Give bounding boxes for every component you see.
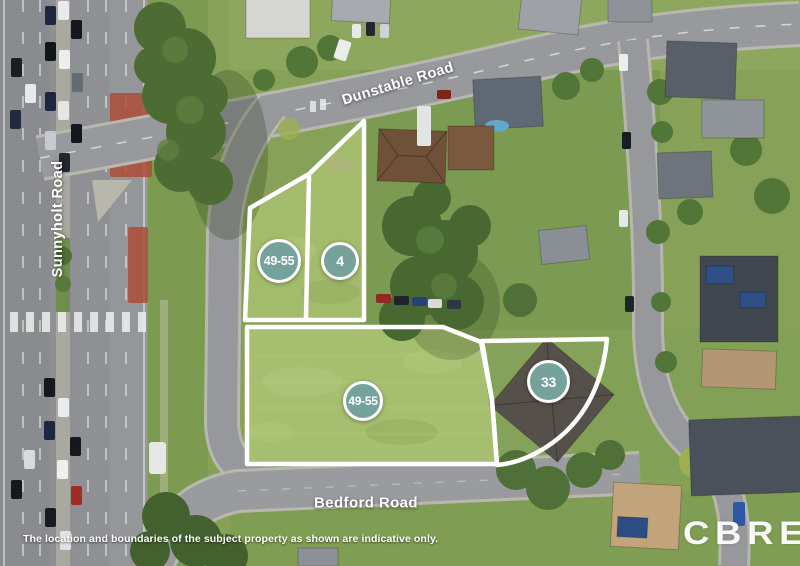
aerial-map: Dunstable Road Sunnyholt Road Bedford Ro… [0, 0, 800, 566]
parcel-badge-4: 4 [321, 242, 359, 280]
brown-house-1 [377, 129, 447, 183]
cbre-logo: CBRE [683, 515, 800, 552]
disclaimer-text: The location and boundaries of the subje… [23, 533, 438, 545]
house-solar-2 [610, 482, 681, 549]
road-label-sunnyholt: Sunnyholt Road [50, 161, 66, 278]
parcel-badge-33: 33 [527, 360, 570, 403]
road-label-bedford: Bedford Road [314, 495, 418, 512]
parcel-badge-49-55-upper: 49-55 [257, 239, 301, 283]
zebra-crossing [10, 312, 146, 332]
boundary-divider [306, 176, 309, 318]
parcel-badge-49-55-lower: 49-55 [343, 381, 383, 421]
house-solar-1 [700, 256, 778, 342]
